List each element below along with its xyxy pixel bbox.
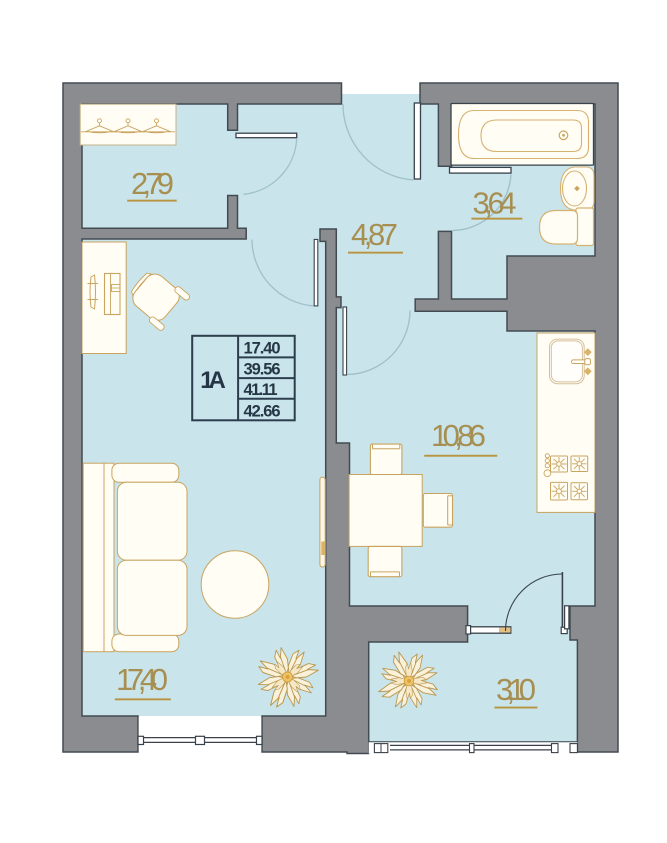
svg-text:42.66: 42.66 <box>244 403 281 421</box>
svg-text:10,86: 10,86 <box>431 418 486 453</box>
svg-text:39.56: 39.56 <box>244 360 281 378</box>
svg-text:1A: 1A <box>200 367 226 394</box>
svg-text:2,79: 2,79 <box>131 166 174 201</box>
svg-text:41.11: 41.11 <box>244 381 278 399</box>
svg-text:4,87: 4,87 <box>351 217 398 252</box>
svg-text:3,64: 3,64 <box>473 186 517 221</box>
svg-text:17.40: 17.40 <box>244 340 281 358</box>
svg-text:3,10: 3,10 <box>496 672 536 707</box>
svg-text:17,40: 17,40 <box>116 662 168 697</box>
